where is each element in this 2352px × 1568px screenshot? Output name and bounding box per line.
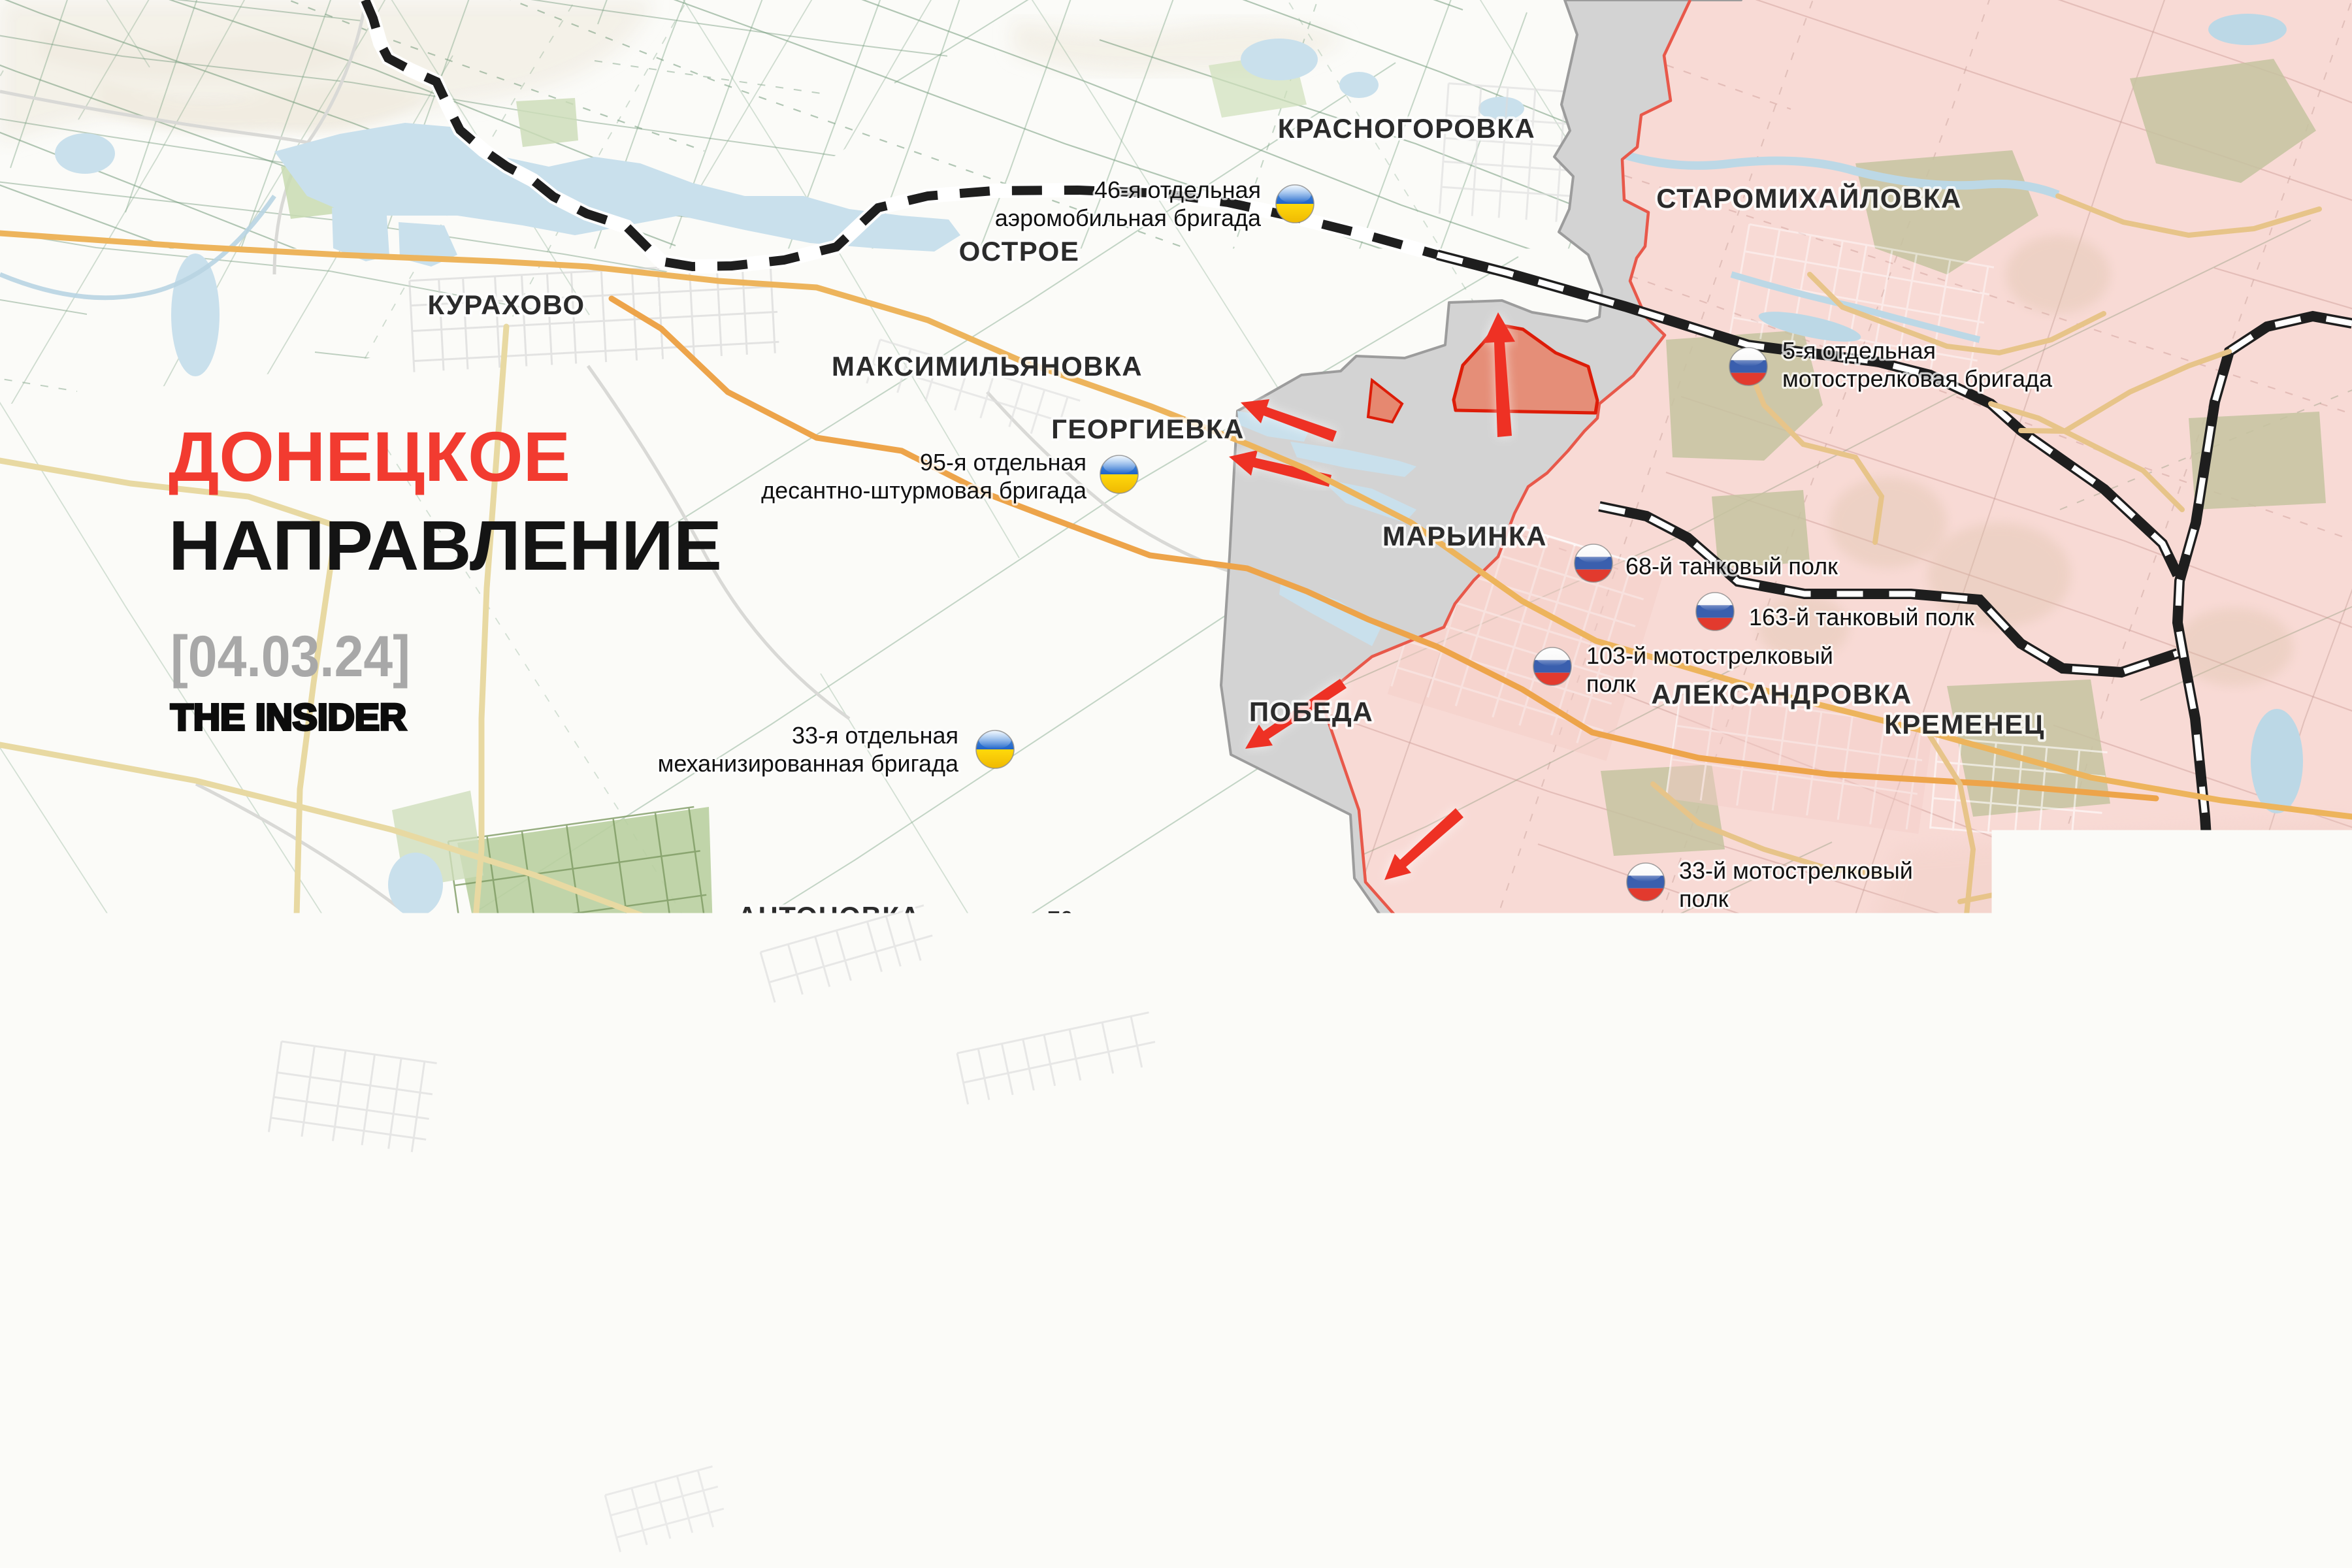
svg-text:5-я отдельная: 5-я отдельная: [1782, 337, 1936, 364]
svg-text:КРАСНОГОРОВКА: КРАСНОГОРОВКА: [1278, 113, 1535, 144]
svg-text:36-я отдельная: 36-я отдельная: [1334, 1427, 1501, 1454]
svg-text:[04.03.24]: [04.03.24]: [171, 623, 410, 689]
svg-text:79-я отдельная: 79-я отдельная: [1047, 906, 1214, 933]
svg-text:103-й мотострелковый: 103-й мотострелковый: [1586, 642, 1833, 669]
svg-text:ОСТРОЕ: ОСТРОЕ: [959, 236, 1080, 267]
svg-text:КОНСТАНТИНОВКА: КОНСТАНТИНОВКА: [928, 1025, 1208, 1056]
svg-text:полк: полк: [1586, 670, 1636, 697]
svg-text:КАТЕРИНОВКА: КАТЕРИНОВКА: [630, 966, 847, 997]
svg-text:155-я отдельная: 155-я отдельная: [1652, 1232, 1831, 1258]
svg-text:АЛЕКСАНДРОВКА: АЛЕКСАНДРОВКА: [1651, 679, 1912, 710]
svg-text:десантно-штурмовая бригада: десантно-штурмовая бригада: [889, 934, 1215, 961]
svg-text:95-я отдельная: 95-я отдельная: [920, 449, 1086, 476]
svg-text:255-й мотострелковый: 255-й мотострелковый: [1697, 1077, 1944, 1104]
svg-text:механизированная бригада: механизированная бригада: [658, 750, 959, 777]
svg-text:ДОНЕЦКОЕ: ДОНЕЦКОЕ: [169, 417, 570, 496]
svg-text:ГЕОРГИЕВКА: ГЕОРГИЕВКА: [1051, 414, 1245, 444]
svg-text:Інформаційний спротив, Poulet: Інформаційний спротив, Poulet volant: [171, 1435, 574, 1462]
svg-text:полк: полк: [1679, 885, 1729, 912]
svg-text:мотострелковая бригада: мотострелковая бригада: [1782, 365, 2053, 392]
svg-text:КРЕМЕНЕЦ: КРЕМЕНЕЦ: [1884, 709, 2045, 740]
svg-text:МАКСИМИЛЬЯНОВКА: МАКСИМИЛЬЯНОВКА: [832, 351, 1143, 382]
svg-text:68-й танковый полк: 68-й танковый полк: [1625, 553, 1838, 580]
svg-text:бригада морской пехоты: бригада морской пехоты: [1652, 1260, 1920, 1286]
svg-text:163-й танковый полк: 163-й танковый полк: [1749, 604, 1974, 630]
svg-text:территорий с 26 февраля по 4 м: территорий с 26 февраля по 4 марта 2024: [171, 1368, 613, 1395]
svg-text:НОВОМИХАЙЛОВКА: НОВОМИХАЙЛОВКА: [1173, 1091, 1465, 1122]
svg-text:механизированная бригада: механизированная бригада: [807, 1394, 1108, 1421]
svg-text:46-я отдельная: 46-я отдельная: [1094, 176, 1261, 203]
svg-text:На карте показаны изменения в: На карте показаны изменения в контроле: [171, 1337, 622, 1364]
svg-text:АНТОНОВКА: АНТОНОВКА: [738, 901, 921, 932]
svg-text:аэромобильная бригада: аэромобильная бригада: [995, 204, 1262, 231]
svg-text:ПОБЕДА: ПОБЕДА: [1249, 696, 1373, 727]
svg-text:полк: полк: [1697, 1105, 1747, 1132]
svg-text:мотострелковая бригада: мотострелковая бригада: [1231, 1455, 1501, 1482]
svg-text:33-я отдельная: 33-я отдельная: [792, 722, 958, 749]
svg-text:НАПРАВЛЕНИЕ: НАПРАВЛЕНИЕ: [169, 506, 722, 585]
svg-text:Источники: DeepState, Military: Источники: DeepState, MilitaryLand,: [171, 1405, 556, 1432]
svg-text:33-й мотострелковый: 33-й мотострелковый: [1679, 857, 1913, 884]
svg-text:СТАРОМИХАЙЛОВКА: СТАРОМИХАЙЛОВКА: [1656, 182, 1961, 214]
svg-text:ТАРАМЧУК: ТАРАМЧУК: [1714, 1420, 1868, 1450]
svg-text:72-я отдельная: 72-я отдельная: [807, 1366, 973, 1393]
svg-text:THE INSIDER: THE INSIDER: [171, 696, 406, 738]
svg-text:СЛАВНОЕ: СЛАВНОЕ: [1661, 1204, 1805, 1235]
svg-text:десантно-штурмовая бригада: десантно-штурмовая бригада: [761, 477, 1087, 504]
svg-text:МАРЬИНКА: МАРЬИНКА: [1382, 521, 1547, 551]
svg-text:КУРАХОВО: КУРАХОВО: [427, 289, 585, 320]
